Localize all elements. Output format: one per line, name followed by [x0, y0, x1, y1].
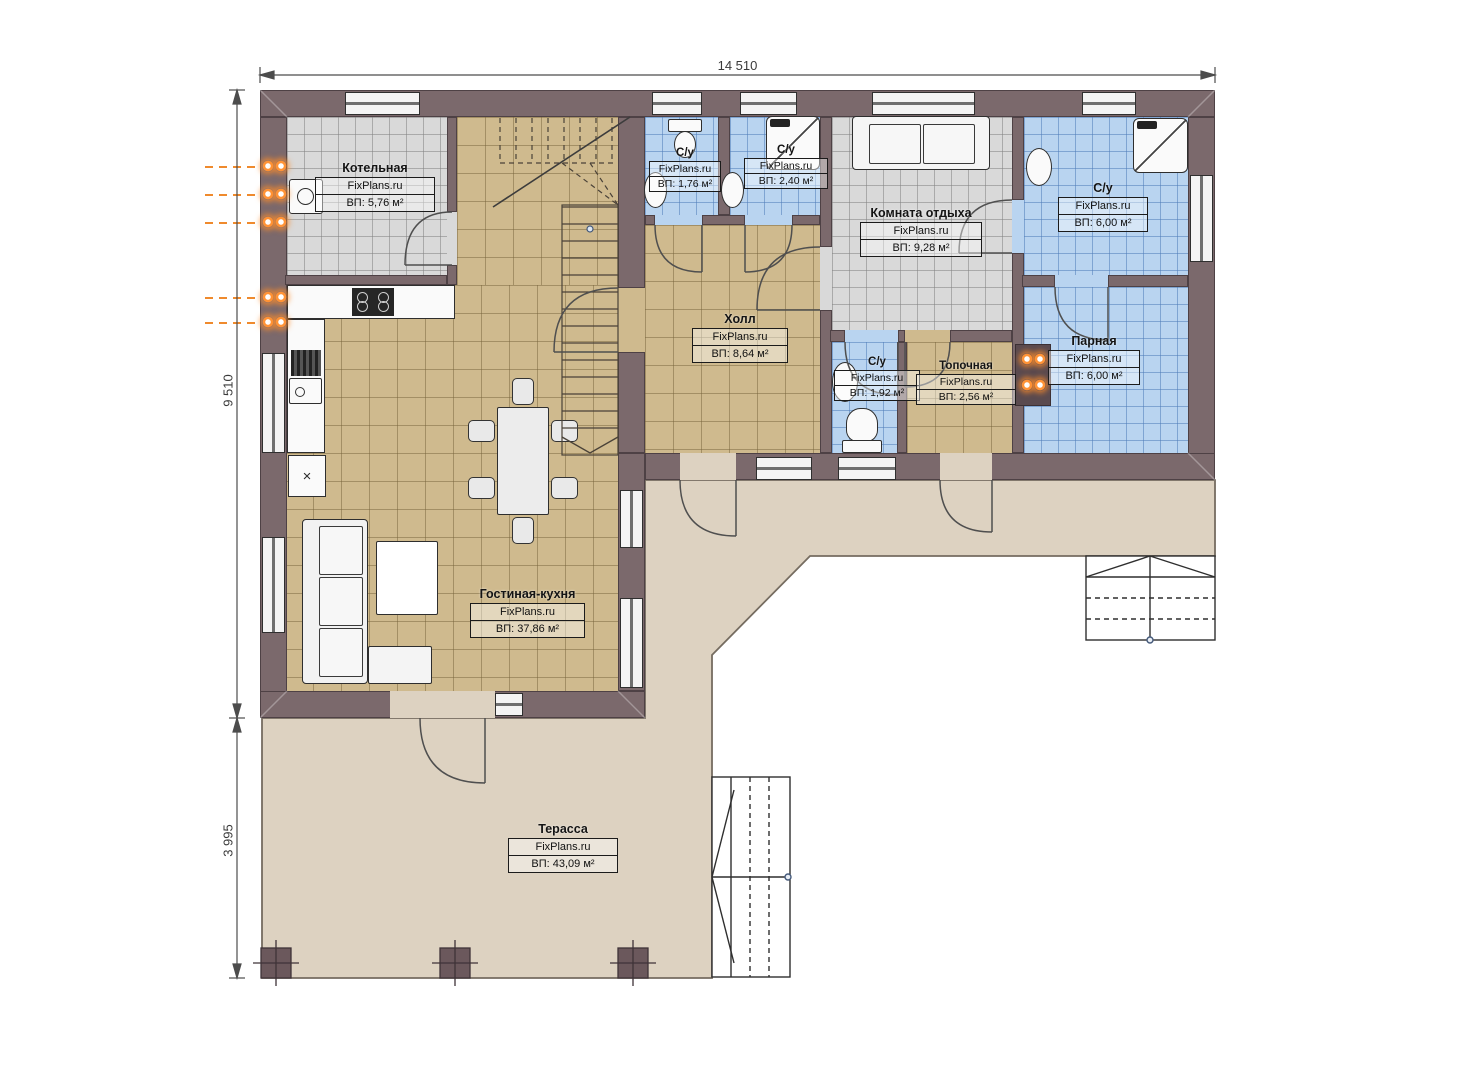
room-info-box: FixPlans.ru ВП: 8,64 м² [692, 328, 788, 363]
shower-faucet-icon [770, 119, 790, 127]
room-name: Терасса [538, 822, 588, 836]
door-opening [820, 247, 832, 310]
door-opening [447, 212, 457, 265]
room-area: ВП: 6,00 м² [1049, 368, 1139, 384]
washer-drum-icon [297, 188, 314, 205]
dishwasher-glyph: × [303, 469, 312, 484]
burner-icon [357, 301, 368, 312]
oven-icon [291, 350, 321, 376]
brand-watermark: FixPlans.ru [861, 223, 981, 240]
window [872, 92, 975, 115]
brand-watermark: FixPlans.ru [1059, 198, 1147, 215]
room-name: Парная [1071, 334, 1116, 348]
floor-plan: × [0, 0, 1473, 1080]
door-opening [618, 288, 645, 352]
wall-central-east-a [1012, 117, 1024, 200]
radiator-coil [1034, 353, 1046, 365]
room-name: Комната отдыха [870, 206, 971, 220]
chair-icon [512, 517, 534, 544]
door-opening [745, 215, 792, 225]
wall-right [1188, 117, 1215, 480]
wall-su600-parnaya-b [1108, 275, 1188, 287]
window [345, 92, 420, 115]
door-opening [1012, 200, 1024, 253]
room-info-box: FixPlans.ru ВП: 9,28 м² [860, 222, 982, 257]
shower-icon [1133, 118, 1188, 173]
wall-kotelnaya-east-b [447, 265, 457, 285]
wall-hall-west-b [618, 352, 645, 453]
wall-kotelnaya-south [285, 275, 447, 285]
radiator-coil [262, 316, 274, 328]
entry-steps-east [1086, 556, 1215, 643]
radiator-coil [262, 160, 274, 172]
room-label-gostinaya: Гостиная-кухня FixPlans.ru ВП: 37,86 м² [470, 587, 585, 638]
room-label-kotelnaya: Котельная FixPlans.ru ВП: 5,76 м² [315, 161, 435, 212]
room-area: ВП: 5,76 м² [316, 195, 434, 211]
window [620, 490, 643, 548]
ottoman [368, 646, 432, 684]
window [1082, 92, 1136, 115]
radiator-coil [262, 188, 274, 200]
door-opening [1055, 275, 1108, 287]
radiator-icon [262, 188, 287, 200]
coffee-table [376, 541, 438, 615]
toilet-icon [846, 408, 878, 442]
chair-icon [468, 420, 495, 442]
door-opening [655, 215, 702, 225]
brand-watermark: FixPlans.ru [693, 329, 787, 346]
radiator-coil [275, 216, 287, 228]
wall-hall-west-a [618, 117, 645, 288]
door-opening [940, 453, 992, 480]
room-name: С/у [777, 144, 795, 156]
room-info-box: FixPlans.ru ВП: 43,09 м² [508, 838, 618, 873]
room-info-box: FixPlans.ru ВП: 37,86 м² [470, 603, 585, 638]
window [620, 598, 643, 688]
brand-watermark: FixPlans.ru [1049, 351, 1139, 368]
dimension-left-lower-label: 3 995 [221, 811, 236, 871]
wall-kotelnaya-east-a [447, 117, 457, 212]
terrace-columns [253, 940, 656, 986]
room-name: С/у [1093, 181, 1112, 195]
room-info-box: FixPlans.ru ВП: 6,00 м² [1048, 350, 1140, 385]
room-info-box: FixPlans.ru ВП: 6,00 м² [1058, 197, 1148, 232]
window [838, 457, 896, 480]
chair-icon [551, 420, 578, 442]
room-info-box: FixPlans.ru ВП: 2,56 м² [916, 374, 1016, 405]
wall-su-south-a [645, 215, 655, 225]
wall-su-south-b [702, 215, 745, 225]
room-info-box: FixPlans.ru ВП: 1,92 м² [834, 370, 920, 401]
entry-steps-south [712, 777, 791, 977]
wall-komnata-south-b [898, 330, 905, 342]
radiator-coil [275, 291, 287, 303]
wall-komnata-south-a [830, 330, 845, 342]
dining-table [497, 407, 549, 515]
radiator-coil [275, 160, 287, 172]
brand-watermark: FixPlans.ru [509, 839, 617, 856]
radiator-coil [1034, 379, 1046, 391]
room-info-box: FixPlans.ru ВП: 5,76 м² [315, 177, 435, 212]
radiator-icon [1021, 353, 1046, 365]
brand-watermark: FixPlans.ru [316, 178, 434, 195]
chair-icon [512, 378, 534, 405]
room-name: Котельная [342, 161, 407, 175]
brand-watermark: FixPlans.ru [835, 371, 919, 386]
room-area: ВП: 8,64 м² [693, 346, 787, 362]
window [262, 537, 285, 633]
radiator-coil [275, 316, 287, 328]
kitchen-sink-icon [289, 378, 322, 404]
drain-icon [295, 387, 305, 397]
shower-faucet-icon [1137, 121, 1157, 129]
room-area: ВП: 2,40 м² [745, 174, 827, 188]
window [262, 353, 285, 453]
window [652, 92, 702, 115]
door-opening [905, 330, 950, 342]
sink-icon [721, 172, 744, 208]
room-label-su-240: С/у FixPlans.ru ВП: 2,40 м² [744, 144, 828, 189]
room-area: ВП: 37,86 м² [471, 621, 584, 637]
radiator-icon [262, 216, 287, 228]
radiator-coil [275, 188, 287, 200]
room-label-su-192: С/у FixPlans.ru ВП: 1,92 м² [834, 356, 920, 401]
room-area: ВП: 1,76 м² [650, 177, 720, 191]
wall-su600-parnaya-a [1022, 275, 1055, 287]
cooktop-icon [352, 288, 394, 316]
brand-watermark: FixPlans.ru [650, 162, 720, 177]
window [756, 457, 812, 480]
room-label-topochnaya: Топочная FixPlans.ru ВП: 2,56 м² [916, 360, 1016, 405]
wall-su-south-c [792, 215, 820, 225]
sofa [302, 519, 368, 684]
room-label-hall: Холл FixPlans.ru ВП: 8,64 м² [692, 312, 788, 363]
radiator-coil [262, 216, 274, 228]
room-label-su-600: С/у FixPlans.ru ВП: 6,00 м² [1058, 181, 1148, 232]
couch [852, 116, 990, 170]
radiator-coil [1021, 379, 1033, 391]
radiator-coil [1021, 353, 1033, 365]
radiator-coil [262, 291, 274, 303]
door-opening [390, 691, 495, 718]
chair-icon [468, 477, 495, 499]
room-info-box: FixPlans.ru ВП: 2,40 м² [744, 158, 828, 189]
room-area: ВП: 6,00 м² [1059, 215, 1147, 231]
dimension-top-label: 14 510 [700, 58, 775, 73]
brand-watermark: FixPlans.ru [917, 375, 1015, 390]
room-label-su-176: С/у FixPlans.ru ВП: 1,76 м² [649, 147, 721, 192]
room-label-terrassa: Терасса FixPlans.ru ВП: 43,09 м² [508, 822, 618, 873]
room-name: С/у [676, 147, 694, 159]
sink-icon [1026, 148, 1052, 186]
toilet-tank-icon [842, 440, 882, 453]
window [495, 693, 523, 716]
room-name: Топочная [939, 360, 993, 372]
window [740, 92, 797, 115]
brand-watermark: FixPlans.ru [471, 604, 584, 621]
room-info-box: FixPlans.ru ВП: 1,76 м² [649, 161, 721, 192]
room-area: ВП: 2,56 м² [917, 390, 1015, 404]
room-area: ВП: 1,92 м² [835, 386, 919, 400]
door-opening [680, 453, 736, 480]
brand-watermark: FixPlans.ru [745, 159, 827, 174]
window [1190, 175, 1213, 262]
couch-cushion [869, 124, 921, 164]
room-label-komnata-otdyha: Комната отдыха FixPlans.ru ВП: 9,28 м² [860, 206, 982, 257]
radiator-icon [262, 316, 287, 328]
dishwasher-icon: × [288, 455, 326, 497]
dimension-left-upper-label: 9 510 [221, 361, 236, 421]
room-name: Холл [724, 312, 755, 326]
sofa-cushion [319, 628, 363, 677]
radiator-icon [1021, 379, 1046, 391]
sofa-cushion [319, 526, 363, 575]
room-name: Гостиная-кухня [480, 587, 576, 601]
room-floor-living-upper [457, 117, 618, 285]
wall-komnata-south-c [950, 330, 1012, 342]
room-area: ВП: 9,28 м² [861, 240, 981, 256]
burner-icon [378, 301, 389, 312]
chair-icon [551, 477, 578, 499]
couch-cushion [923, 124, 975, 164]
room-area: ВП: 43,09 м² [509, 856, 617, 872]
room-label-parnaya: Парная FixPlans.ru ВП: 6,00 м² [1048, 334, 1140, 385]
radiator-supply-dashes [205, 167, 258, 323]
door-opening [845, 330, 898, 342]
radiator-icon [262, 160, 287, 172]
sofa-cushion [319, 577, 363, 626]
radiator-icon [262, 291, 287, 303]
room-name: С/у [868, 356, 886, 368]
